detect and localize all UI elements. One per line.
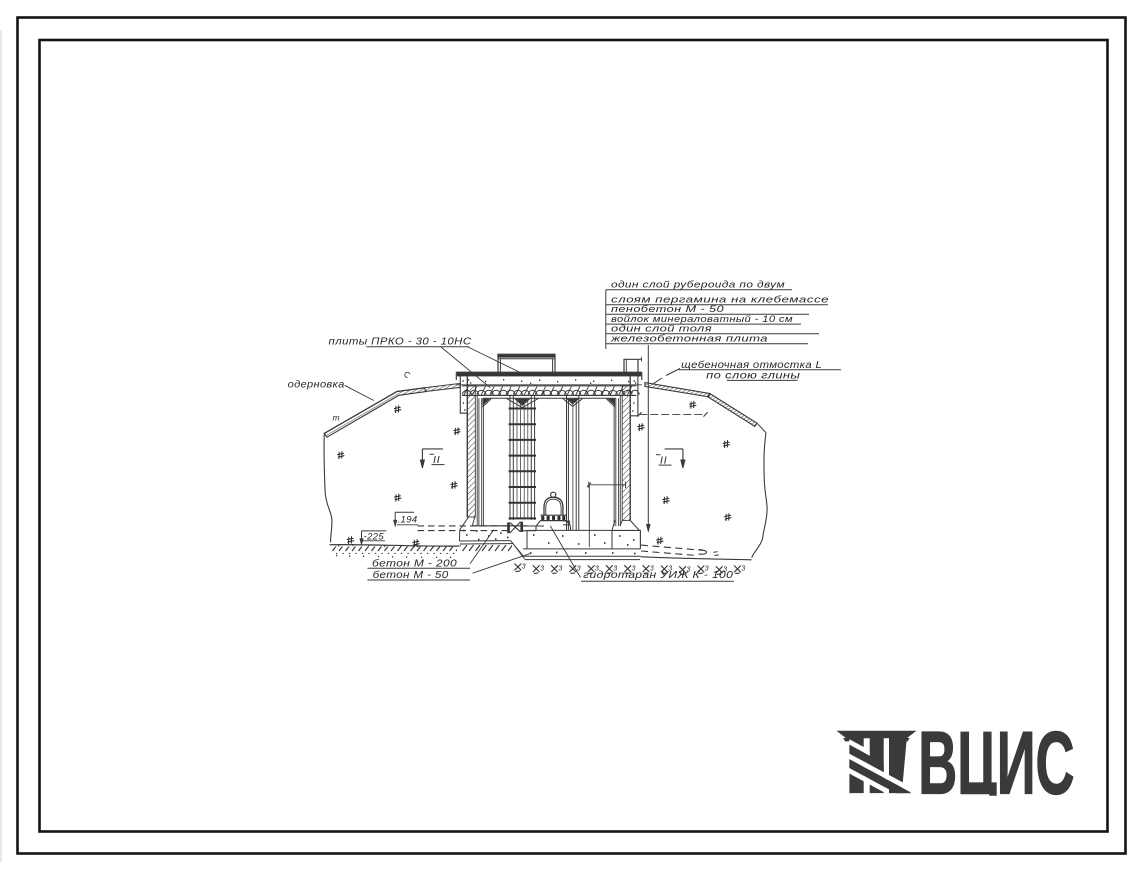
svg-text:.194: .194: [398, 514, 418, 525]
svg-text:гидротаран УИЖ К - 100: гидротаран УИЖ К - 100: [583, 570, 733, 581]
svg-text:бетон М - 50: бетон М - 50: [373, 569, 449, 581]
svg-text:одерновка: одерновка: [288, 379, 345, 390]
svg-text:3: 3: [558, 566, 562, 573]
svg-text:m: m: [333, 413, 340, 423]
svg-text:3: 3: [741, 566, 745, 573]
svg-text:один слой рубероида по дву: один слой рубероида по двум: [611, 280, 786, 290]
svg-text:пенобетон М - 50: пенобетон М - 50: [611, 304, 725, 314]
svg-text:слоям пергамина на клебемас: слоям пергамина на клебемассе: [611, 295, 829, 305]
svg-text:ВЦИС: ВЦИС: [918, 713, 1074, 813]
svg-text:плиты ПРКО - 30 - 10НС: плиты ПРКО - 30 - 10НС: [329, 336, 472, 347]
svg-text:3: 3: [522, 564, 526, 571]
svg-text:войлок минераловатный - 10 см: войлок минераловатный - 10 см: [611, 314, 793, 324]
svg-text:один слой толя: один слой толя: [611, 324, 712, 334]
svg-text:железобетонная плита: железобетонная плита: [610, 334, 768, 344]
svg-text:3: 3: [540, 566, 544, 573]
